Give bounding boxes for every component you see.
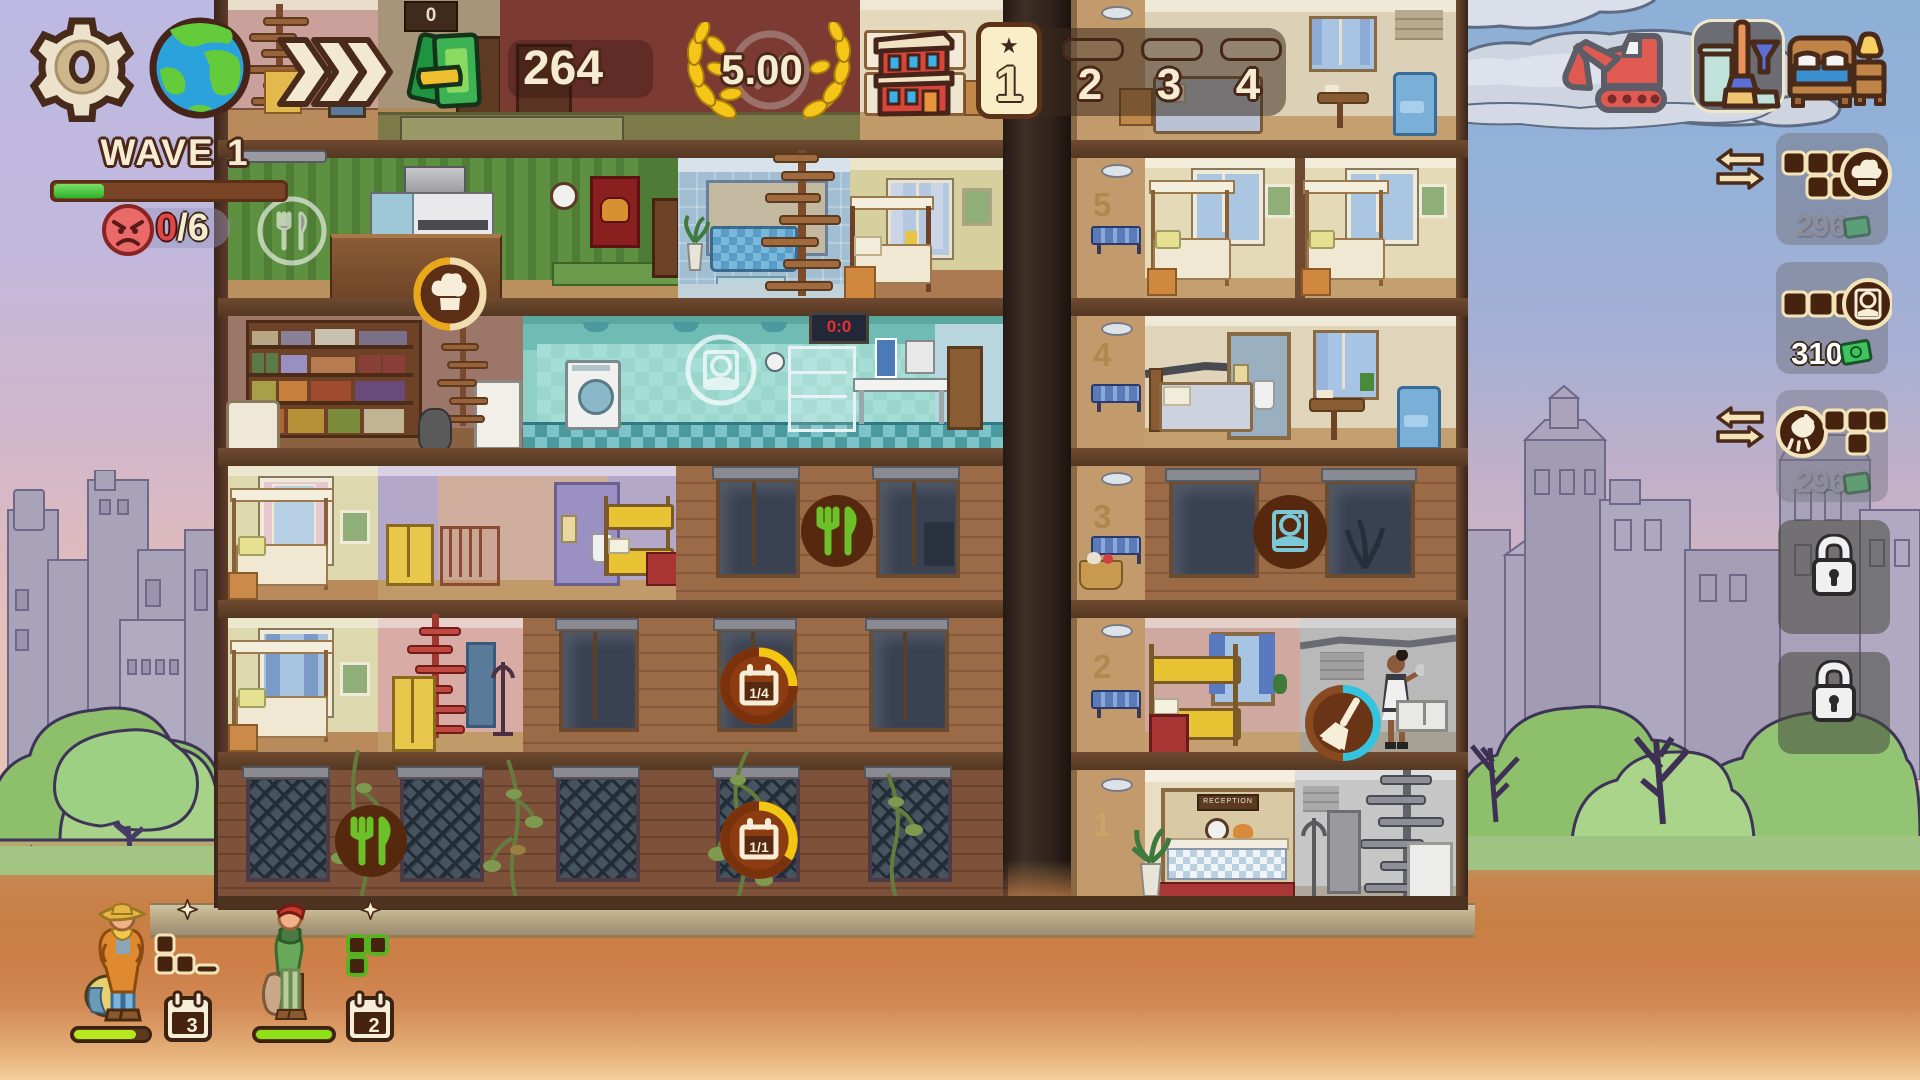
svg-text:3: 3 <box>186 1015 197 1037</box>
svg-text:2: 2 <box>368 1015 379 1037</box>
svg-text:1/1: 1/1 <box>749 839 769 855</box>
svg-text:1/4: 1/4 <box>749 685 769 701</box>
